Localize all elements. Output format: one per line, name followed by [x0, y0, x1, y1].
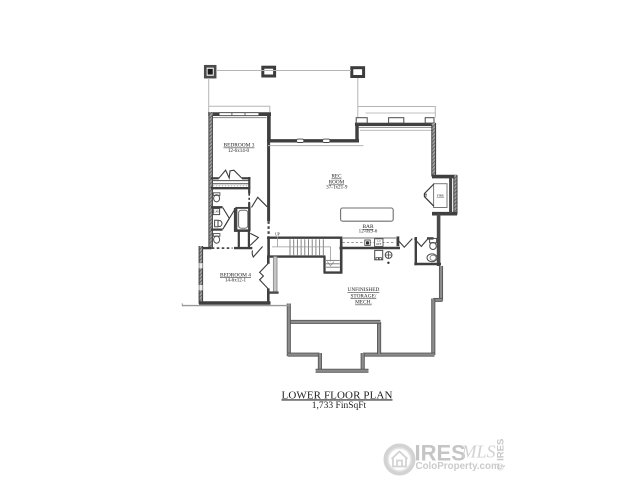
svg-text:UP: UP [275, 232, 280, 236]
svg-text:37-1x21-9: 37-1x21-9 [326, 185, 348, 191]
svg-text:LOWER FLOOR PLAN: LOWER FLOOR PLAN [282, 389, 393, 401]
svg-text:FIRE: FIRE [437, 194, 444, 198]
svg-text:ColoProperty.com™: ColoProperty.com™ [416, 461, 506, 472]
svg-text:14-6x12-1: 14-6x12-1 [225, 278, 247, 284]
svg-text:MLS: MLS [461, 442, 496, 462]
svg-text:12-0x9-6: 12-0x9-6 [359, 229, 378, 235]
svg-text:MECH.: MECH. [355, 300, 372, 306]
svg-text:UNFINISHED: UNFINISHED [348, 287, 380, 293]
svg-text:REF: REF [376, 243, 381, 246]
svg-text:© IRES: © IRES [496, 439, 507, 471]
svg-text:12-6x14-0: 12-6x14-0 [228, 148, 250, 154]
svg-text:1,733 FinSqFt: 1,733 FinSqFt [312, 401, 367, 411]
svg-text:STORAGE/: STORAGE/ [350, 294, 376, 300]
svg-text:LAV: LAV [214, 210, 221, 214]
